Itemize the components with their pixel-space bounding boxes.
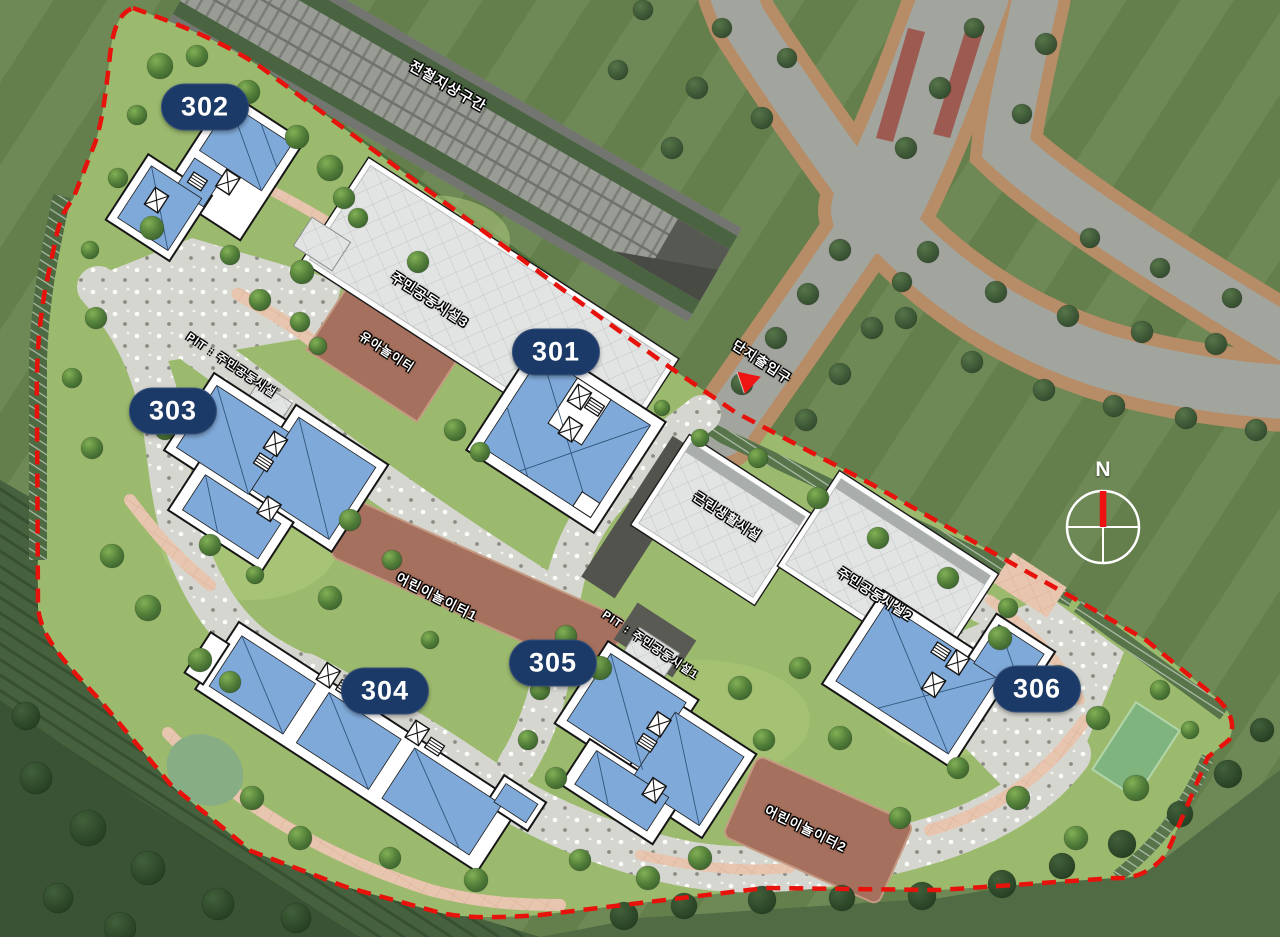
building-badge-302[interactable]: 302 — [161, 84, 249, 131]
building-badge-304[interactable]: 304 — [341, 668, 429, 715]
building-badge-301[interactable]: 301 — [512, 329, 600, 376]
building-badge-306[interactable]: 306 — [993, 666, 1081, 713]
building-badge-303[interactable]: 303 — [129, 388, 217, 435]
site-plan-rendering — [0, 0, 1280, 937]
site-plan-canvas: 전철지상구간 주민공동시설3 유아놀이터 단지출입구 PIT : 주민공동시설 … — [0, 0, 1280, 937]
compass-north-label: N — [1095, 458, 1110, 482]
building-badge-305[interactable]: 305 — [509, 640, 597, 687]
compass-rose — [1067, 491, 1139, 563]
